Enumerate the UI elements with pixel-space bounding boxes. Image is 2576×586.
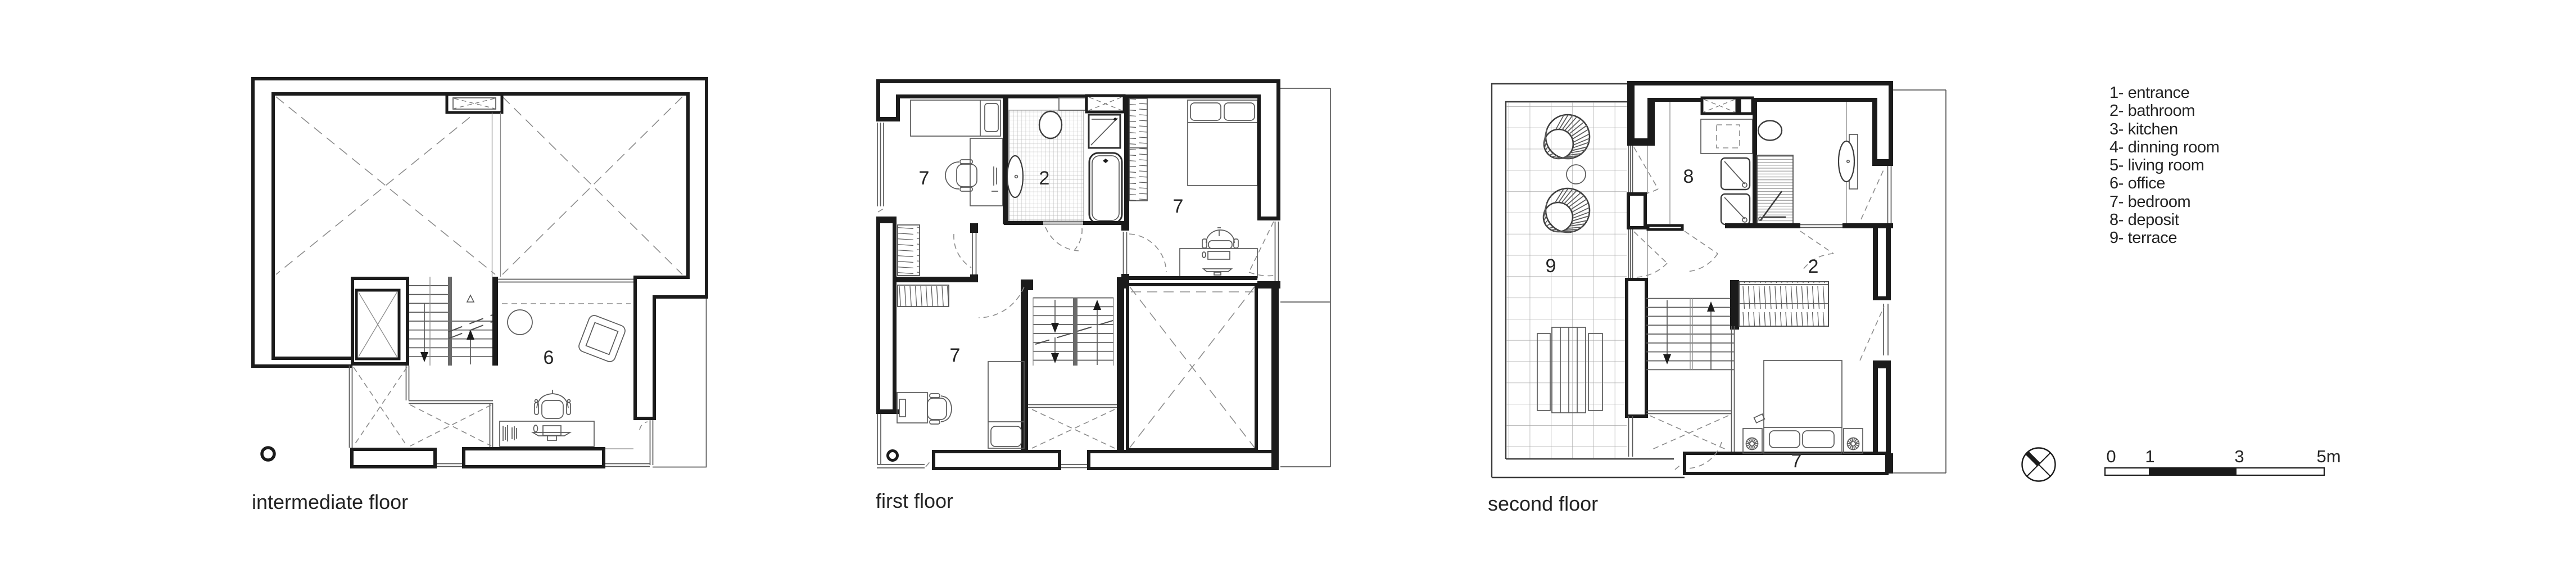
svg-text:6: 6 bbox=[544, 347, 554, 368]
svg-text:9- terrace: 9- terrace bbox=[2109, 229, 2177, 247]
svg-text:6- office: 6- office bbox=[2109, 174, 2165, 192]
svg-text:9: 9 bbox=[1546, 255, 1556, 277]
svg-text:8- deposit: 8- deposit bbox=[2109, 211, 2179, 229]
svg-text:3- kitchen: 3- kitchen bbox=[2109, 120, 2178, 138]
svg-text:5m: 5m bbox=[2316, 447, 2340, 466]
svg-text:second floor: second floor bbox=[1488, 492, 1598, 515]
svg-text:1- entrance: 1- entrance bbox=[2109, 84, 2189, 102]
svg-text:0: 0 bbox=[2106, 447, 2116, 466]
svg-text:7- bedroom: 7- bedroom bbox=[2109, 193, 2190, 211]
svg-text:2: 2 bbox=[1808, 256, 1819, 277]
svg-text:5- living room: 5- living room bbox=[2109, 156, 2204, 174]
svg-text:2- bathroom: 2- bathroom bbox=[2109, 102, 2195, 120]
svg-text:2: 2 bbox=[1039, 168, 1050, 189]
svg-text:7: 7 bbox=[1173, 196, 1184, 217]
svg-text:1: 1 bbox=[2145, 447, 2154, 466]
svg-text:intermediate floor: intermediate floor bbox=[252, 490, 408, 513]
svg-text:7: 7 bbox=[919, 168, 930, 189]
svg-text:first floor: first floor bbox=[876, 489, 953, 512]
svg-text:3: 3 bbox=[2234, 447, 2244, 466]
svg-text:7: 7 bbox=[950, 345, 961, 366]
svg-text:8: 8 bbox=[1683, 166, 1694, 187]
svg-text:4- dinning room: 4- dinning room bbox=[2109, 138, 2220, 156]
